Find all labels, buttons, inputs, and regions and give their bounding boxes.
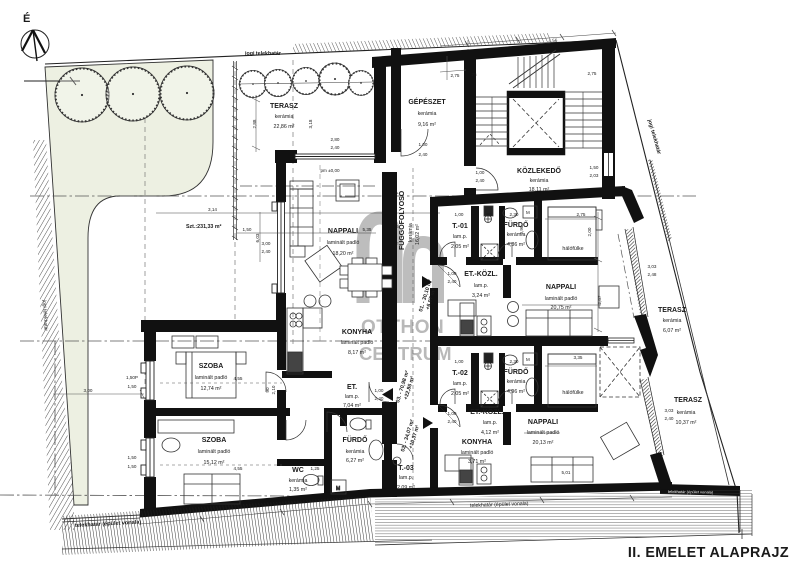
svg-text:lam.p.: lam.p.: [474, 283, 488, 289]
svg-text:laminált padló: laminált padló: [545, 296, 578, 302]
svg-text:laminált padló: laminált padló: [327, 240, 360, 246]
svg-text:18,20 m²: 18,20 m²: [333, 251, 354, 257]
svg-text:90: 90: [486, 212, 492, 217]
svg-text:lam.p.: lam.p.: [345, 394, 359, 400]
svg-text:TERASZ: TERASZ: [674, 397, 703, 404]
svg-text:kerámia: kerámia: [530, 178, 549, 184]
svg-text:TERASZ: TERASZ: [658, 307, 687, 314]
svg-text:NAPPALI: NAPPALI: [546, 284, 576, 291]
svg-text:3,03: 3,03: [665, 408, 674, 413]
svg-text:90: 90: [486, 359, 492, 364]
svg-text:2,75: 2,75: [577, 212, 586, 217]
svg-text:pm ±0,00: pm ±0,00: [320, 168, 340, 173]
svg-text:1,00: 1,00: [476, 170, 485, 175]
svg-text:3,24 m²: 3,24 m²: [472, 293, 490, 299]
svg-text:3,14: 3,14: [208, 207, 217, 212]
svg-text:3,03: 3,03: [648, 264, 657, 269]
svg-text:5,35: 5,35: [363, 227, 372, 232]
svg-text:FÜRDŐ: FÜRDŐ: [504, 220, 529, 229]
svg-text:II. EMELET ALAPRAJZ: II. EMELET ALAPRAJZ: [628, 545, 789, 561]
svg-text:6,07 m²: 6,07 m²: [663, 328, 681, 334]
svg-text:7,04 m²: 7,04 m²: [343, 403, 361, 409]
svg-text:2,40: 2,40: [665, 416, 674, 421]
svg-text:laminált padló: laminált padló: [341, 340, 374, 346]
svg-text:4,12 m²: 4,12 m²: [481, 430, 499, 436]
svg-text:2,75: 2,75: [588, 71, 597, 76]
svg-text:ET.-KÖZL.: ET.-KÖZL.: [470, 407, 503, 416]
svg-text:2,05 m²: 2,05 m²: [451, 391, 469, 397]
svg-text:1,50: 1,50: [128, 455, 137, 460]
svg-text:2,10: 2,10: [271, 385, 276, 394]
svg-text:1,50: 1,50: [128, 464, 137, 469]
svg-text:1,50: 1,50: [590, 165, 599, 170]
svg-text:M: M: [336, 486, 340, 492]
svg-text:1,25: 1,25: [311, 466, 320, 471]
svg-text:kerámia: kerámia: [346, 449, 365, 455]
svg-text:3,00: 3,00: [262, 241, 271, 246]
svg-text:laminált padló: laminált padló: [198, 449, 231, 455]
svg-text:3,71 m²: 3,71 m²: [468, 459, 486, 465]
svg-text:4,96 m²: 4,96 m²: [507, 389, 525, 395]
svg-text:4,56: 4,56: [548, 38, 558, 44]
svg-text:4,55: 4,55: [234, 466, 243, 471]
svg-text:GÉPÉSZET: GÉPÉSZET: [408, 97, 446, 106]
svg-text:6,03: 6,03: [255, 233, 260, 242]
svg-text:2,75: 2,75: [451, 73, 460, 78]
svg-text:kerámia: kerámia: [418, 111, 437, 117]
svg-text:90: 90: [265, 387, 270, 393]
svg-text:NAPPALI: NAPPALI: [328, 228, 358, 235]
svg-text:2,80: 2,80: [331, 137, 340, 142]
svg-text:jogi telekhatár: jogi telekhatár: [244, 51, 281, 57]
svg-text:2,30: 2,30: [510, 359, 519, 364]
svg-text:18,11 m²: 18,11 m²: [529, 187, 550, 193]
svg-text:2,40: 2,40: [476, 178, 485, 183]
svg-text:1,00: 1,00: [448, 271, 457, 276]
svg-text:kerámia: kerámia: [677, 410, 696, 416]
svg-text:25: 25: [471, 72, 477, 77]
svg-text:1,00: 1,00: [455, 212, 464, 217]
svg-text:2,48: 2,48: [648, 272, 657, 277]
svg-text:22,86 m²: 22,86 m²: [274, 124, 295, 130]
svg-text:lam.p.: lam.p.: [453, 381, 467, 387]
svg-text:1,50: 1,50: [243, 227, 252, 232]
svg-text:20,13 m²: 20,13 m²: [533, 440, 554, 446]
svg-text:3,00: 3,00: [84, 388, 93, 393]
svg-text:2,03: 2,03: [590, 173, 599, 178]
svg-text:10,37 m²: 10,37 m²: [676, 420, 697, 426]
svg-text:FÜRDŐ: FÜRDŐ: [504, 367, 529, 376]
svg-text:SZOBA: SZOBA: [199, 363, 224, 370]
svg-text:NAPPALI: NAPPALI: [528, 419, 558, 426]
svg-text:2,40: 2,40: [375, 396, 384, 401]
svg-text:kerámia: kerámia: [408, 223, 414, 242]
svg-text:2,90: 2,90: [519, 225, 524, 234]
svg-text:kerámia: kerámia: [663, 318, 682, 324]
svg-text:1,00: 1,00: [419, 142, 428, 147]
svg-text:16,02 m²: 16,02 m²: [415, 224, 421, 245]
svg-text:KÖZLEKEDŐ: KÖZLEKEDŐ: [517, 166, 562, 175]
svg-text:5,01: 5,01: [562, 470, 571, 475]
svg-text:4,36 m²: 4,36 m²: [507, 242, 525, 248]
svg-text:kerámia: kerámia: [275, 114, 294, 120]
svg-text:hálófülke: hálófülke: [562, 390, 583, 396]
svg-text:kerámia: kerámia: [507, 379, 526, 385]
svg-text:6,27 m²: 6,27 m²: [346, 458, 364, 464]
svg-text:3,35: 3,35: [574, 355, 583, 360]
svg-text:hálófülke: hálófülke: [562, 246, 583, 252]
svg-text:4,55: 4,55: [234, 376, 243, 381]
svg-text:3,18: 3,18: [308, 119, 313, 128]
svg-text:KONYHA: KONYHA: [342, 329, 372, 336]
svg-text:kerámia: kerámia: [289, 478, 308, 484]
svg-text:2,05 m²: 2,05 m²: [451, 244, 469, 250]
svg-text:1,00: 1,00: [375, 388, 384, 393]
svg-text:T.-02: T.-02: [452, 370, 468, 377]
svg-text:12,74 m²: 12,74 m²: [201, 386, 222, 392]
svg-text:TERASZ: TERASZ: [270, 103, 299, 110]
svg-text:8,17 m²: 8,17 m²: [348, 350, 366, 356]
svg-text:2,40: 2,40: [448, 419, 457, 424]
svg-text:Szt.:231,33 m²: Szt.:231,33 m²: [186, 224, 222, 230]
svg-text:1,35 m²: 1,35 m²: [289, 487, 307, 493]
svg-text:2,40: 2,40: [419, 152, 428, 157]
svg-text:T.-01: T.-01: [452, 223, 468, 230]
svg-text:SZOBA: SZOBA: [202, 437, 227, 444]
svg-text:2,00: 2,00: [587, 227, 592, 236]
svg-text:1,50: 1,50: [128, 384, 137, 389]
svg-text:lam.p.: lam.p.: [453, 234, 467, 240]
svg-text:laminált padló: laminált padló: [195, 375, 228, 381]
svg-text:É: É: [23, 12, 30, 25]
svg-text:2,40: 2,40: [448, 279, 457, 284]
svg-text:9,16 m²: 9,16 m²: [418, 122, 436, 128]
svg-text:2,40: 2,40: [262, 249, 271, 254]
svg-text:WC: WC: [292, 467, 304, 474]
svg-text:FÜGGŐFOLYOSÓ: FÜGGŐFOLYOSÓ: [397, 190, 406, 250]
svg-text:20,75 m²: 20,75 m²: [551, 305, 572, 311]
svg-text:lam.p.: lam.p.: [483, 420, 497, 426]
svg-text:2,40: 2,40: [331, 145, 340, 150]
svg-text:1,00: 1,00: [448, 411, 457, 416]
svg-text:T.-03: T.-03: [398, 465, 414, 472]
svg-text:ET.-KÖZL.: ET.-KÖZL.: [464, 269, 497, 278]
svg-text:ET.: ET.: [347, 384, 357, 391]
svg-text:KONYHA: KONYHA: [462, 439, 492, 446]
svg-text:laminált padló: laminált padló: [461, 450, 494, 456]
svg-text:1,00: 1,00: [455, 359, 464, 364]
svg-text:M: M: [526, 357, 530, 362]
svg-text:M: M: [526, 210, 530, 215]
svg-text:2,09 m²: 2,09 m²: [397, 485, 415, 491]
svg-text:1,50P: 1,50P: [126, 375, 138, 380]
svg-text:lam.p.: lam.p.: [399, 475, 413, 481]
svg-text:FÜRDŐ: FÜRDŐ: [343, 435, 368, 444]
svg-text:2,30: 2,30: [510, 212, 519, 217]
